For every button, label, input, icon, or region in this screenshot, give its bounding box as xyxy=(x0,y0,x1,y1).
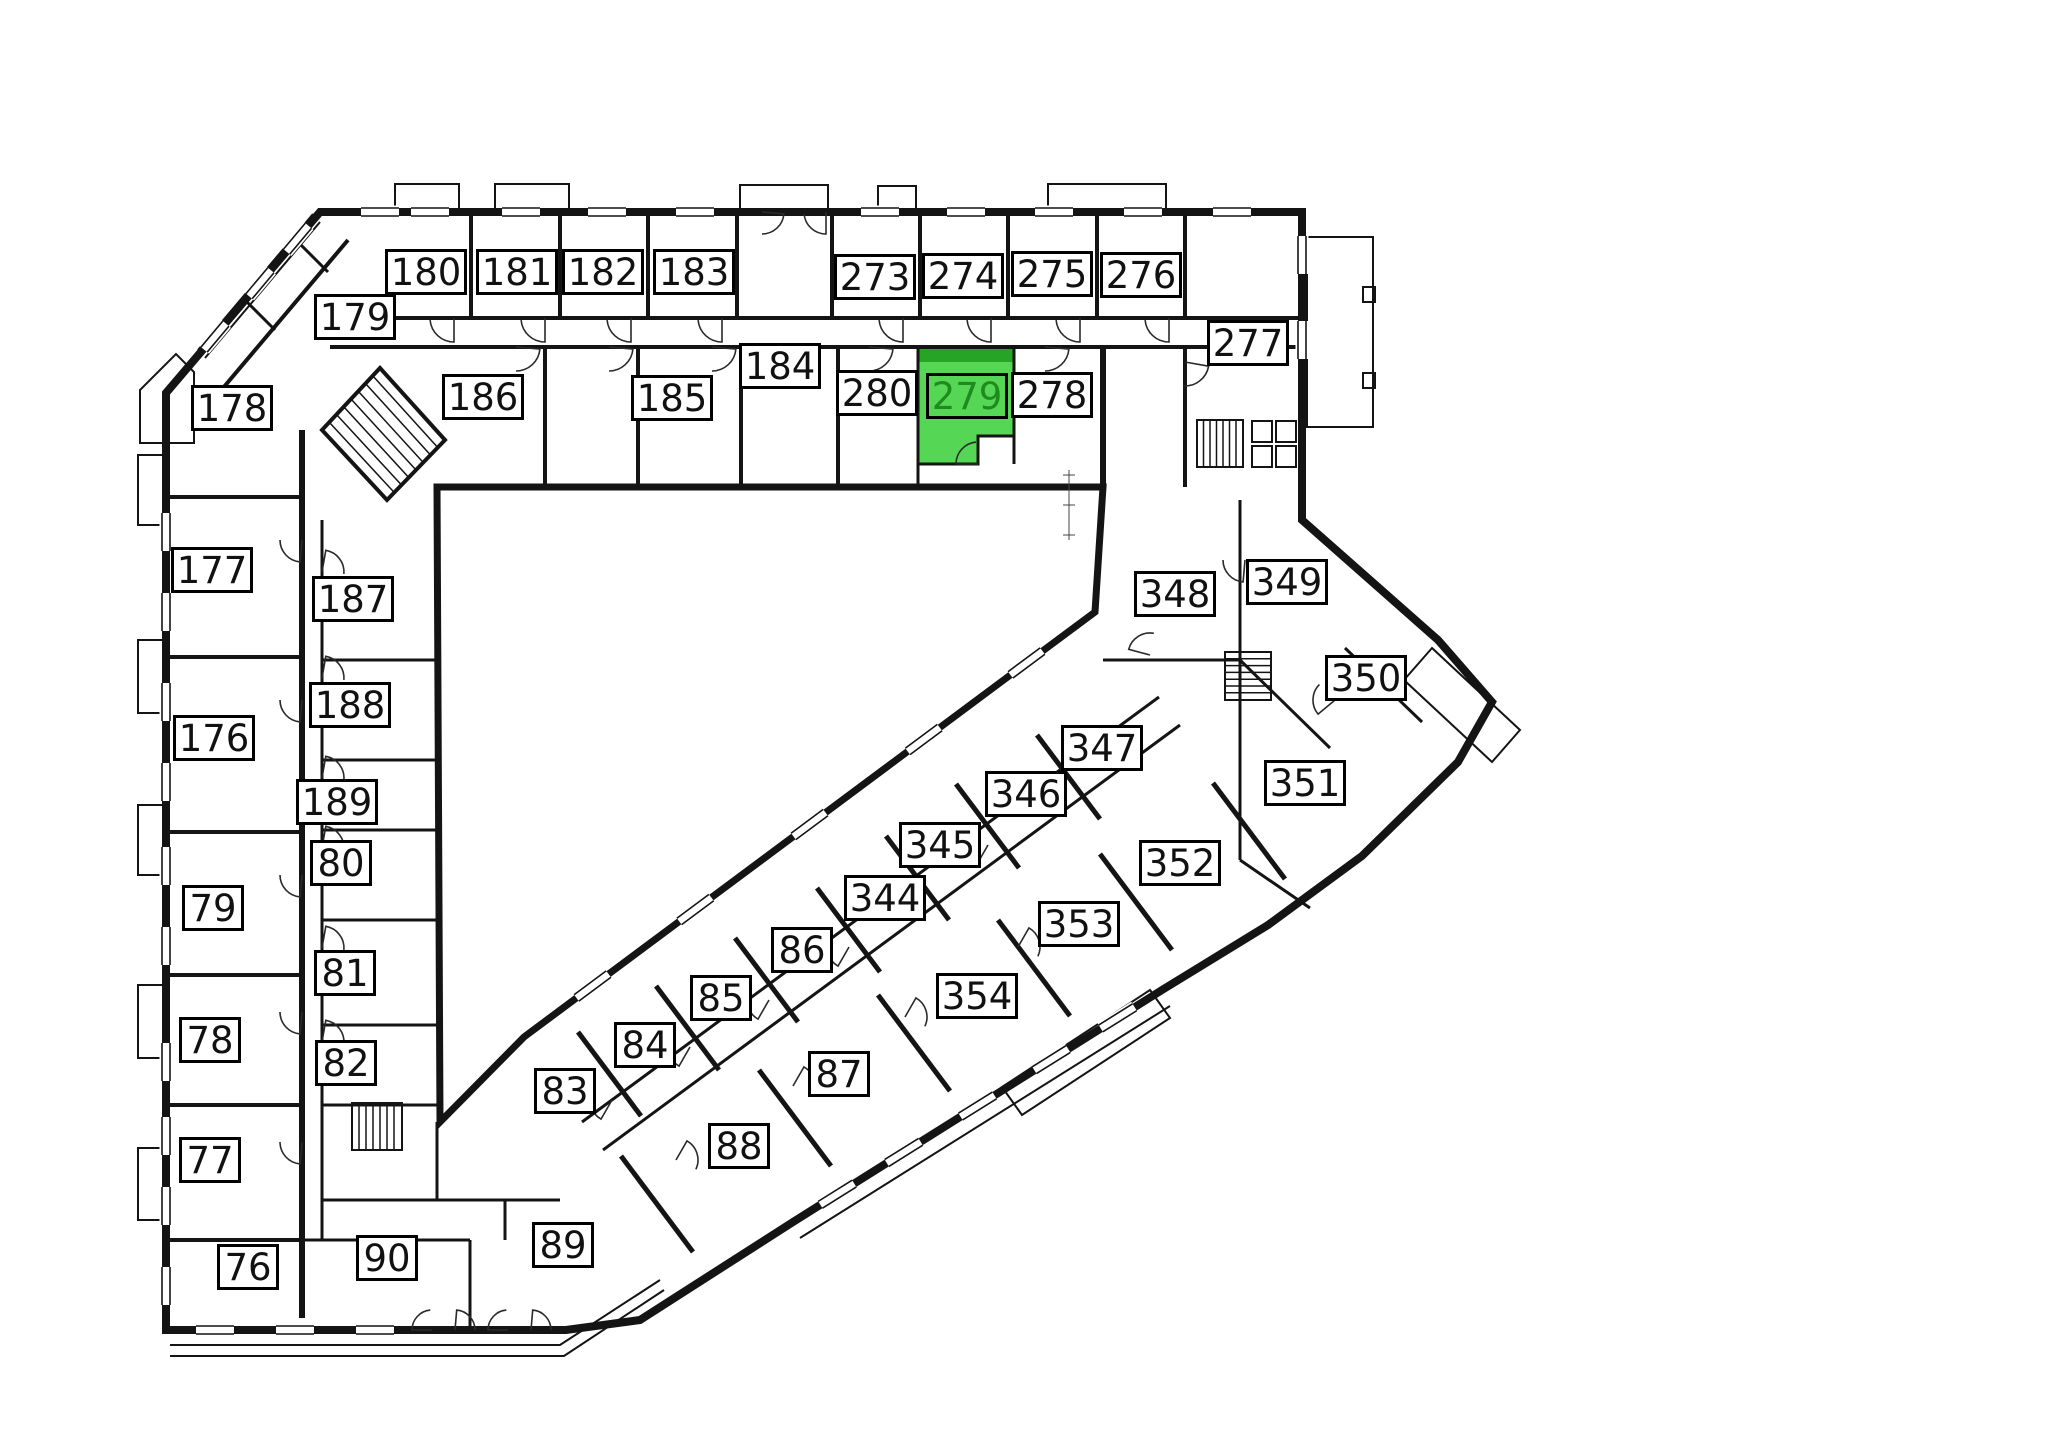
room-label-178[interactable]: 178 xyxy=(191,385,273,431)
room-label-83[interactable]: 83 xyxy=(534,1068,596,1114)
room-label-82[interactable]: 82 xyxy=(315,1040,377,1086)
room-label-90[interactable]: 90 xyxy=(356,1235,418,1281)
room-label-344[interactable]: 344 xyxy=(844,875,926,921)
room-label-279-selected[interactable]: 279 xyxy=(926,373,1008,419)
room-label-273[interactable]: 273 xyxy=(834,254,916,300)
room-label-352[interactable]: 352 xyxy=(1139,840,1221,886)
room-label-87[interactable]: 87 xyxy=(808,1051,870,1097)
room-label-187[interactable]: 187 xyxy=(312,576,394,622)
room-label-177[interactable]: 177 xyxy=(171,547,253,593)
room-label-353[interactable]: 353 xyxy=(1038,901,1120,947)
room-label-78[interactable]: 78 xyxy=(179,1017,241,1063)
room-label-180[interactable]: 180 xyxy=(385,249,467,295)
room-label-274[interactable]: 274 xyxy=(922,253,1004,299)
room-label-89[interactable]: 89 xyxy=(532,1222,594,1268)
room-label-348[interactable]: 348 xyxy=(1134,571,1216,617)
room-label-345[interactable]: 345 xyxy=(899,822,981,868)
room-label-276[interactable]: 276 xyxy=(1100,252,1182,298)
room-label-76[interactable]: 76 xyxy=(217,1244,279,1290)
room-label-179[interactable]: 179 xyxy=(314,294,396,340)
floor-plan: 1801811821832732742752762771791842802792… xyxy=(0,0,2048,1447)
room-label-278[interactable]: 278 xyxy=(1011,372,1093,418)
room-label-188[interactable]: 188 xyxy=(309,682,391,728)
room-label-277[interactable]: 277 xyxy=(1207,320,1289,366)
room-label-85[interactable]: 85 xyxy=(690,975,752,1021)
room-label-184[interactable]: 184 xyxy=(739,343,821,389)
room-label-79[interactable]: 79 xyxy=(182,885,244,931)
room-label-81[interactable]: 81 xyxy=(314,950,376,996)
room-label-186[interactable]: 186 xyxy=(442,374,524,420)
room-label-189[interactable]: 189 xyxy=(296,779,378,825)
room-labels-layer: 1801811821832732742752762771791842802792… xyxy=(0,0,2048,1447)
room-label-349[interactable]: 349 xyxy=(1246,559,1328,605)
room-label-88[interactable]: 88 xyxy=(708,1123,770,1169)
room-label-80[interactable]: 80 xyxy=(310,840,372,886)
room-label-346[interactable]: 346 xyxy=(985,771,1067,817)
room-label-280[interactable]: 280 xyxy=(836,370,918,416)
room-label-347[interactable]: 347 xyxy=(1061,725,1143,771)
room-label-86[interactable]: 86 xyxy=(771,927,833,973)
room-label-275[interactable]: 275 xyxy=(1011,251,1093,297)
room-label-181[interactable]: 181 xyxy=(476,249,558,295)
room-label-354[interactable]: 354 xyxy=(936,973,1018,1019)
room-label-183[interactable]: 183 xyxy=(653,249,735,295)
room-label-182[interactable]: 182 xyxy=(562,249,644,295)
room-label-185[interactable]: 185 xyxy=(631,375,713,421)
room-label-176[interactable]: 176 xyxy=(173,715,255,761)
room-label-350[interactable]: 350 xyxy=(1325,655,1407,701)
room-label-77[interactable]: 77 xyxy=(179,1137,241,1183)
room-label-351[interactable]: 351 xyxy=(1264,760,1346,806)
room-label-84[interactable]: 84 xyxy=(614,1022,676,1068)
